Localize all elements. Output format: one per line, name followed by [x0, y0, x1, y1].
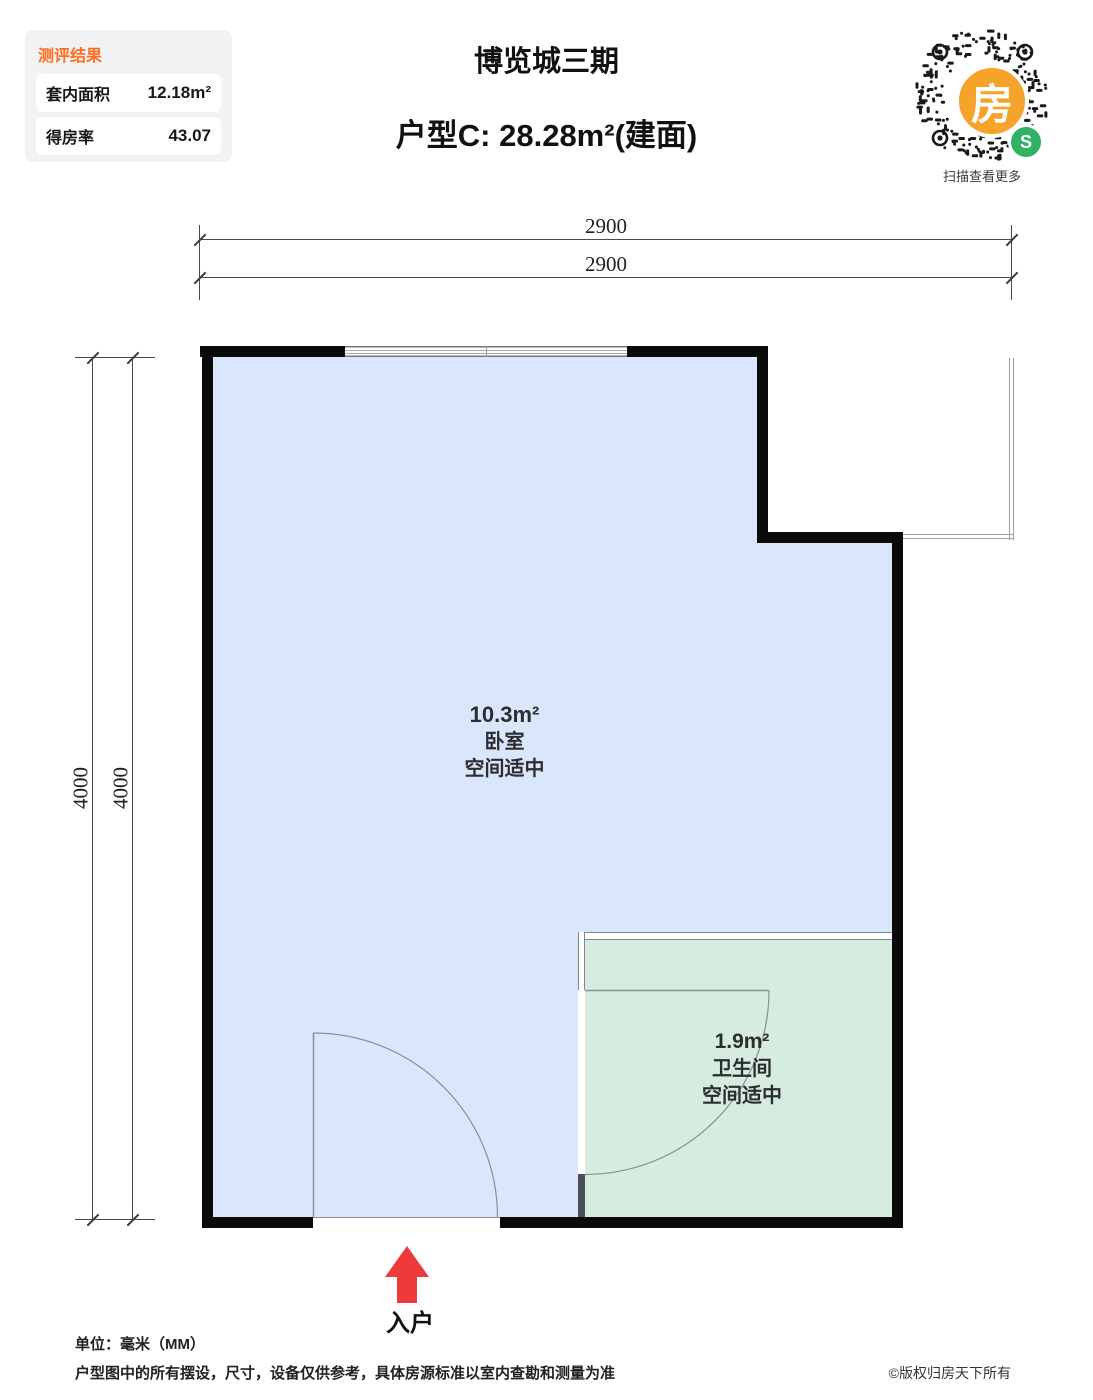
floorplan-page: 测评结果 套内面积 12.18m² 得房率 43.07 博览城三期 户型C: 2…	[0, 0, 1093, 1400]
bathroom-label: 1.9m² 卫生间 空间适中	[628, 1028, 856, 1110]
bedroom-name: 卧室	[382, 729, 627, 756]
door-swing-overlay	[0, 0, 1093, 1400]
copyright: ©版权归房天下所有	[811, 1363, 1011, 1383]
bathroom-name: 卫生间	[628, 1056, 856, 1083]
disclaimer: 户型图中的所有摆设，尺寸，设备仅供参考，具体房源标准以室内查勘和测量为准	[75, 1362, 615, 1383]
entry-arrow-icon	[385, 1246, 429, 1277]
bathroom-area-value: 1.9m²	[628, 1028, 856, 1056]
unit-note: 单位：毫米（MM）	[75, 1333, 205, 1354]
entry-label: 入户	[350, 1303, 470, 1338]
entry-arrow-stem	[397, 1276, 417, 1303]
bedroom-note: 空间适中	[382, 756, 627, 783]
bedroom-area-value: 10.3m²	[382, 701, 627, 729]
bedroom-label: 10.3m² 卧室 空间适中	[382, 701, 627, 783]
bathroom-note: 空间适中	[628, 1083, 856, 1110]
